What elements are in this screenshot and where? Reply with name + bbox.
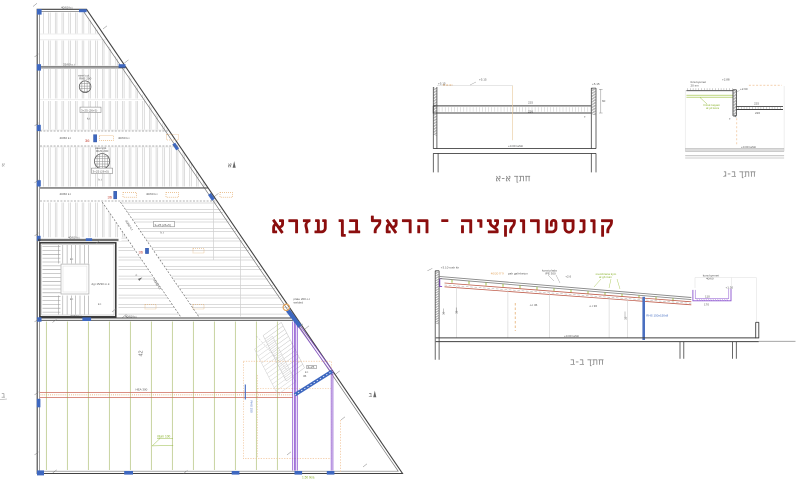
svg-text:40/20 ע"ת: 40/20 ע"ת [491,271,504,275]
svg-text:20 sm: 20 sm [691,83,700,87]
svg-text:40/60 k.t: 40/60 k.t [70,314,82,318]
svg-text:k.t: k.t [70,297,73,301]
svg-text:3+25: 3+25 [308,365,315,369]
svg-text:+0.00 tahtit: +0.00 tahtit [508,144,523,148]
svg-text:+3.10 rosh kir: +3.10 rosh kir [441,265,459,269]
svg-text:40/60 k.t: 40/60 k.t [68,236,80,240]
svg-text:225: 225 [528,100,533,104]
svg-text:40/60 k.t: 40/60 k.t [60,192,72,196]
svg-text:IPE 300: IPE 300 [545,271,556,275]
svg-text:k.t: k.t [70,257,73,261]
svg-text:25/60 o.t: 25/60 o.t [63,62,75,66]
svg-text:40/60 k.t: 40/60 k.t [125,315,137,319]
svg-text:+0.00 tahtit: +0.00 tahtit [564,334,579,338]
svg-text:RHS 200: RHS 200 [96,149,109,153]
svg-text:dgi 15/30 m.k: dgi 15/30 m.k [92,282,111,286]
svg-text:+2.6: +2.6 [565,274,571,278]
svg-text:36: 36 [85,138,90,143]
svg-text:225: 225 [754,102,759,106]
svg-text:k.t: k.t [98,302,101,306]
svg-text:226: 226 [755,111,760,115]
svg-text:40/60 k.t: 40/60 k.t [118,136,130,140]
svg-text:pah gali+beton: pah gali+beton [508,271,528,275]
svg-text:+2.88: +2.88 [722,78,730,82]
svg-text:3+25 (26+5): 3+25 (26+5) [81,109,97,113]
svg-text:42: 42 [139,350,145,356]
svg-text:+5.15: +5.15 [479,78,487,82]
svg-text:k.t: k.t [161,231,164,235]
svg-text:HEA 300: HEA 300 [136,388,148,392]
svg-text:al gb itum: al gb itum [599,275,613,279]
svg-text:36: 36 [303,374,307,378]
svg-text:o.t 36: o.t 36 [530,303,538,307]
svg-text:+5.15: +5.15 [438,81,446,85]
svg-text:+2.60: +2.60 [740,87,748,91]
svg-text:35: 35 [455,310,459,314]
svg-text:36: 36 [442,311,446,315]
svg-text:k.t: k.t [87,116,90,120]
svg-text:40/60 k.t: 40/60 k.t [146,192,158,196]
svg-text:k.t: k.t [99,177,102,181]
svg-text:40/60 k.t: 40/60 k.t [60,136,72,140]
svg-text:+1.30: +1.30 [726,285,734,289]
svg-text:RHS 150x150x8: RHS 150x150x8 [646,313,668,317]
svg-text:1.50 tkra: 1.50 tkra [302,476,315,480]
svg-text:ritum 100: ritum 100 [157,435,171,439]
svg-text:RHS 150: RHS 150 [250,401,254,414]
svg-text:36: 36 [108,195,113,200]
svg-text:170: 170 [704,302,709,306]
svg-text:3+25 (26+5): 3+25 (26+5) [155,223,171,227]
svg-text:40/60: 40/60 [706,276,714,280]
svg-text:110: 110 [705,295,710,299]
svg-text:+0.00 tahtit: +0.00 tahtit [741,145,756,149]
svg-text:40/60 k.t: 40/60 k.t [61,5,73,9]
svg-text:+5.15: +5.15 [592,82,600,86]
svg-text:226: 226 [528,110,533,114]
svg-text:RHS 200: RHS 200 [79,76,92,80]
svg-text:al yd kora: al yd kora [706,106,719,110]
svg-text:o.t 36: o.t 36 [590,304,598,308]
svg-text:60: 60 [602,99,606,103]
svg-text:3+25 (26+5): 3+25 (26+5) [93,170,109,174]
svg-text:36: 36 [139,250,144,255]
svg-text:welded: welded [294,300,304,304]
svg-text:35: 35 [623,316,627,320]
